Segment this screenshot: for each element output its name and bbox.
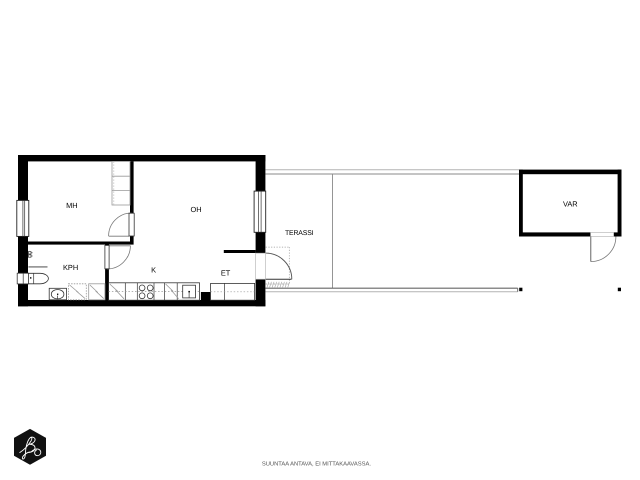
svg-text:K: K	[151, 266, 156, 275]
svg-text:TERASSI: TERASSI	[285, 230, 314, 237]
svg-text:KPH: KPH	[63, 263, 78, 272]
svg-text:SUUNTAA ANTAVA, EI MITTAKAAVAS: SUUNTAA ANTAVA, EI MITTAKAAVASSA.	[262, 460, 371, 467]
svg-text:OH: OH	[190, 205, 201, 214]
svg-text:VAR: VAR	[563, 199, 578, 208]
svg-text:ET: ET	[221, 269, 231, 278]
svg-text:MH: MH	[66, 201, 78, 210]
